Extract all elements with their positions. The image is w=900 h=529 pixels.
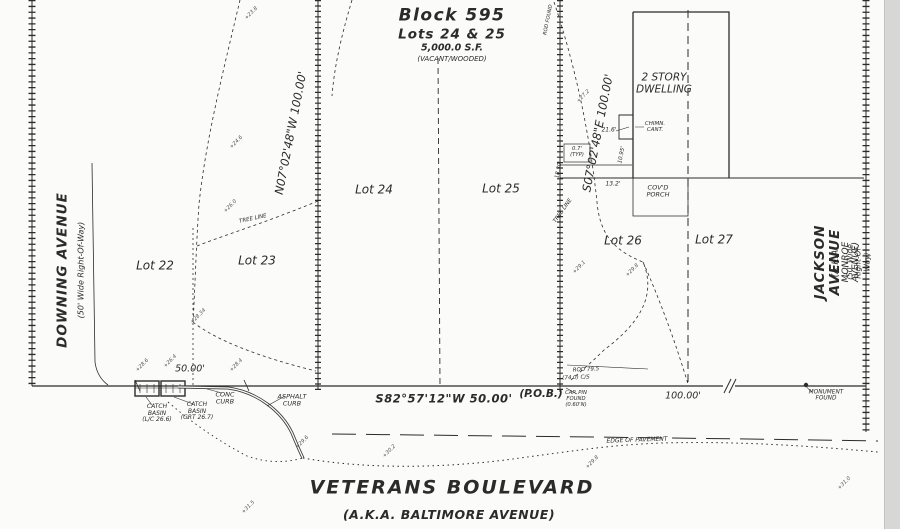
street-veterans-aka: (A.K.A. BALTIMORE AVENUE) (343, 508, 555, 522)
catch-basin-2: CATCH BASIN (GRT 26.7) (181, 402, 213, 422)
block-note: (VACANT/WOODED) (417, 56, 486, 64)
spot-elevation: +27.2 (576, 89, 591, 104)
lot-25-label: Lot 25 (482, 182, 520, 195)
scan-edge-strip (884, 0, 900, 529)
lot-22-label: Lot 22 (136, 259, 174, 272)
spot-elevation: +29.8 (585, 455, 600, 470)
spot-elevation: +31.0 (837, 476, 852, 491)
survey-plat-page: Block 595Lots 24 & 255,000.0 S.F.(VACANT… (0, 0, 900, 529)
cs-dim: (74.0) C/S (562, 374, 590, 381)
spot-elevation: +28.6 (135, 358, 150, 373)
dim-typ: 0.7' (TYP) (570, 147, 584, 159)
catch-basin-1: CATCH BASIN (L/C 26.6) (142, 404, 172, 424)
street-downing-sub: (50' Wide Right-Of-Way) (78, 222, 87, 319)
dim-10-95: 10.95' (617, 146, 626, 164)
lot-26-label: Lot 26 (604, 234, 642, 247)
lot-27-label: Lot 27 (695, 233, 733, 246)
monument-found: MONUMENT FOUND (809, 390, 844, 403)
spot-elevation: +29.8 (625, 263, 640, 278)
conc-curb-label: CONC CURB (215, 392, 234, 407)
bearing-west-line: N07°02'48"W 100.00' (273, 70, 310, 195)
bearing-front-line: S82°57'12"W 50.00' (375, 393, 512, 406)
street-veterans: VETERANS BOULEVARD (310, 477, 595, 498)
porch-label: COV'D PORCH (647, 185, 670, 200)
street-jackson-sub: (50' Wide Right-Of-Way) (846, 242, 871, 283)
lot-24-label: Lot 24 (355, 183, 393, 196)
dwelling-label: 2 STORY DWELLING (636, 72, 692, 96)
street-downing: DOWNING AVENUE (55, 192, 70, 348)
tree-line-1: TREE LINE (239, 213, 268, 225)
spot-elevation: +28.34 (190, 308, 208, 326)
cap-pin-found: CAP. PIN FOUND (0.60'N) (565, 391, 587, 409)
spot-elevation: +30.2 (382, 444, 397, 459)
spot-elevation: +28.4 (229, 358, 244, 373)
dim-100ft: 100.00' (665, 392, 701, 403)
block-title: Block 595 (399, 6, 506, 25)
dim-13-2: 13.2' (605, 182, 620, 189)
spot-elevation: +29.1 (572, 260, 587, 275)
dim-21-6: 21.6' (601, 128, 616, 135)
asphalt-curb-label: ASPHALT CURB (278, 394, 307, 409)
spot-elevation: +29.6 (295, 435, 310, 450)
rod-found: ROD FOUND (543, 4, 554, 35)
spot-elevation: +24.6 (229, 135, 244, 150)
pob-label: (P.O.B.) (519, 389, 562, 401)
lot-23-label: Lot 23 (238, 254, 276, 267)
spot-elevation: +31.5 (241, 500, 256, 515)
block-area: 5,000.0 S.F. (421, 44, 483, 55)
spot-elevation: +26.0 (223, 199, 238, 214)
edge-of-pavement: EDGE OF PAVEMENT (606, 437, 667, 446)
block-lots: Lots 24 & 25 (398, 27, 506, 42)
chimney-cant: CHIMN. CANT. (645, 121, 665, 133)
tree-line-2: TREE LINE (552, 198, 573, 225)
dim-18-30: 18.30' (554, 161, 563, 179)
spot-elevation: +23.8 (244, 6, 259, 21)
rod-dim: ROD 79.5 (573, 366, 600, 374)
label-layer: Block 595Lots 24 & 255,000.0 S.F.(VACANT… (0, 0, 900, 529)
dim-50ft: 50.00' (175, 365, 205, 376)
